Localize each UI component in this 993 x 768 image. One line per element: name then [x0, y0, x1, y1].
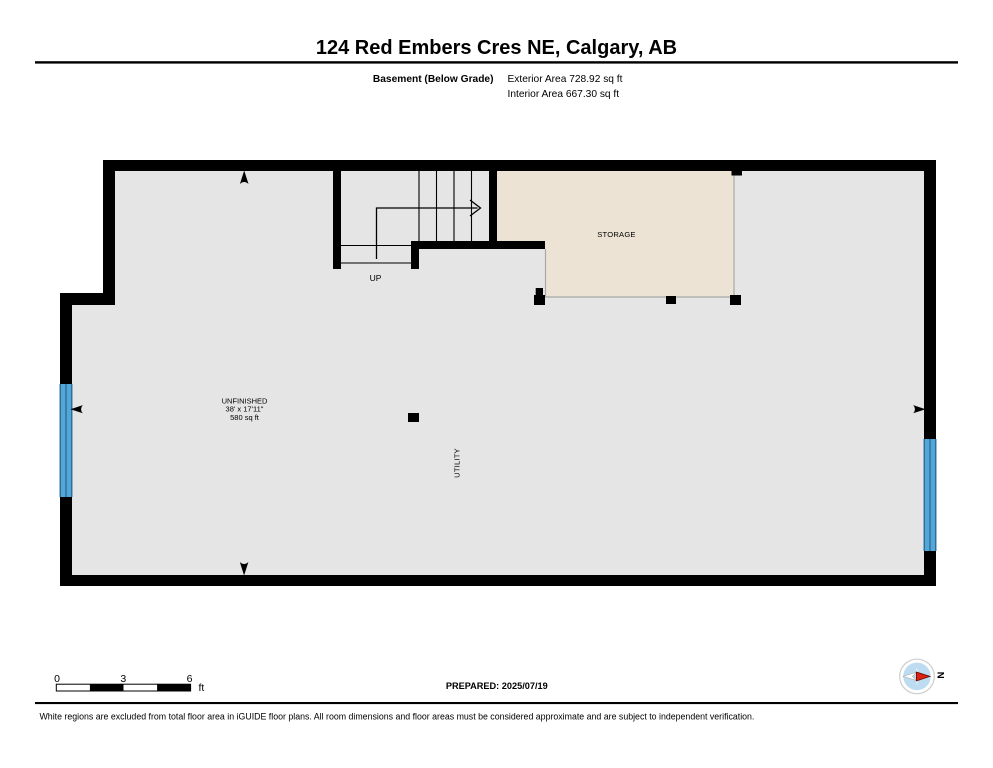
- svg-text:ft: ft: [199, 682, 205, 694]
- svg-text:Basement (Below Grade): Basement (Below Grade): [373, 74, 494, 85]
- svg-text:6: 6: [187, 673, 193, 685]
- svg-text:White regions are excluded fro: White regions are excluded from total fl…: [40, 712, 755, 722]
- svg-text:Exterior Area 728.92 sq ft: Exterior Area 728.92 sq ft: [508, 74, 623, 85]
- svg-text:Interior Area 667.30 sq ft: Interior Area 667.30 sq ft: [508, 89, 620, 100]
- svg-text:124 Red Embers Cres NE, Calgar: 124 Red Embers Cres NE, Calgary, AB: [316, 37, 677, 59]
- svg-text:580 sq ft: 580 sq ft: [230, 413, 260, 422]
- svg-text:N: N: [934, 672, 945, 679]
- svg-text:STORAGE: STORAGE: [597, 230, 635, 239]
- svg-text:0: 0: [54, 673, 60, 685]
- svg-text:UTILITY: UTILITY: [453, 448, 462, 478]
- svg-text:UP: UP: [370, 273, 382, 283]
- svg-text:3: 3: [120, 673, 126, 685]
- svg-text:PREPARED: 2025/07/19: PREPARED: 2025/07/19: [446, 681, 548, 691]
